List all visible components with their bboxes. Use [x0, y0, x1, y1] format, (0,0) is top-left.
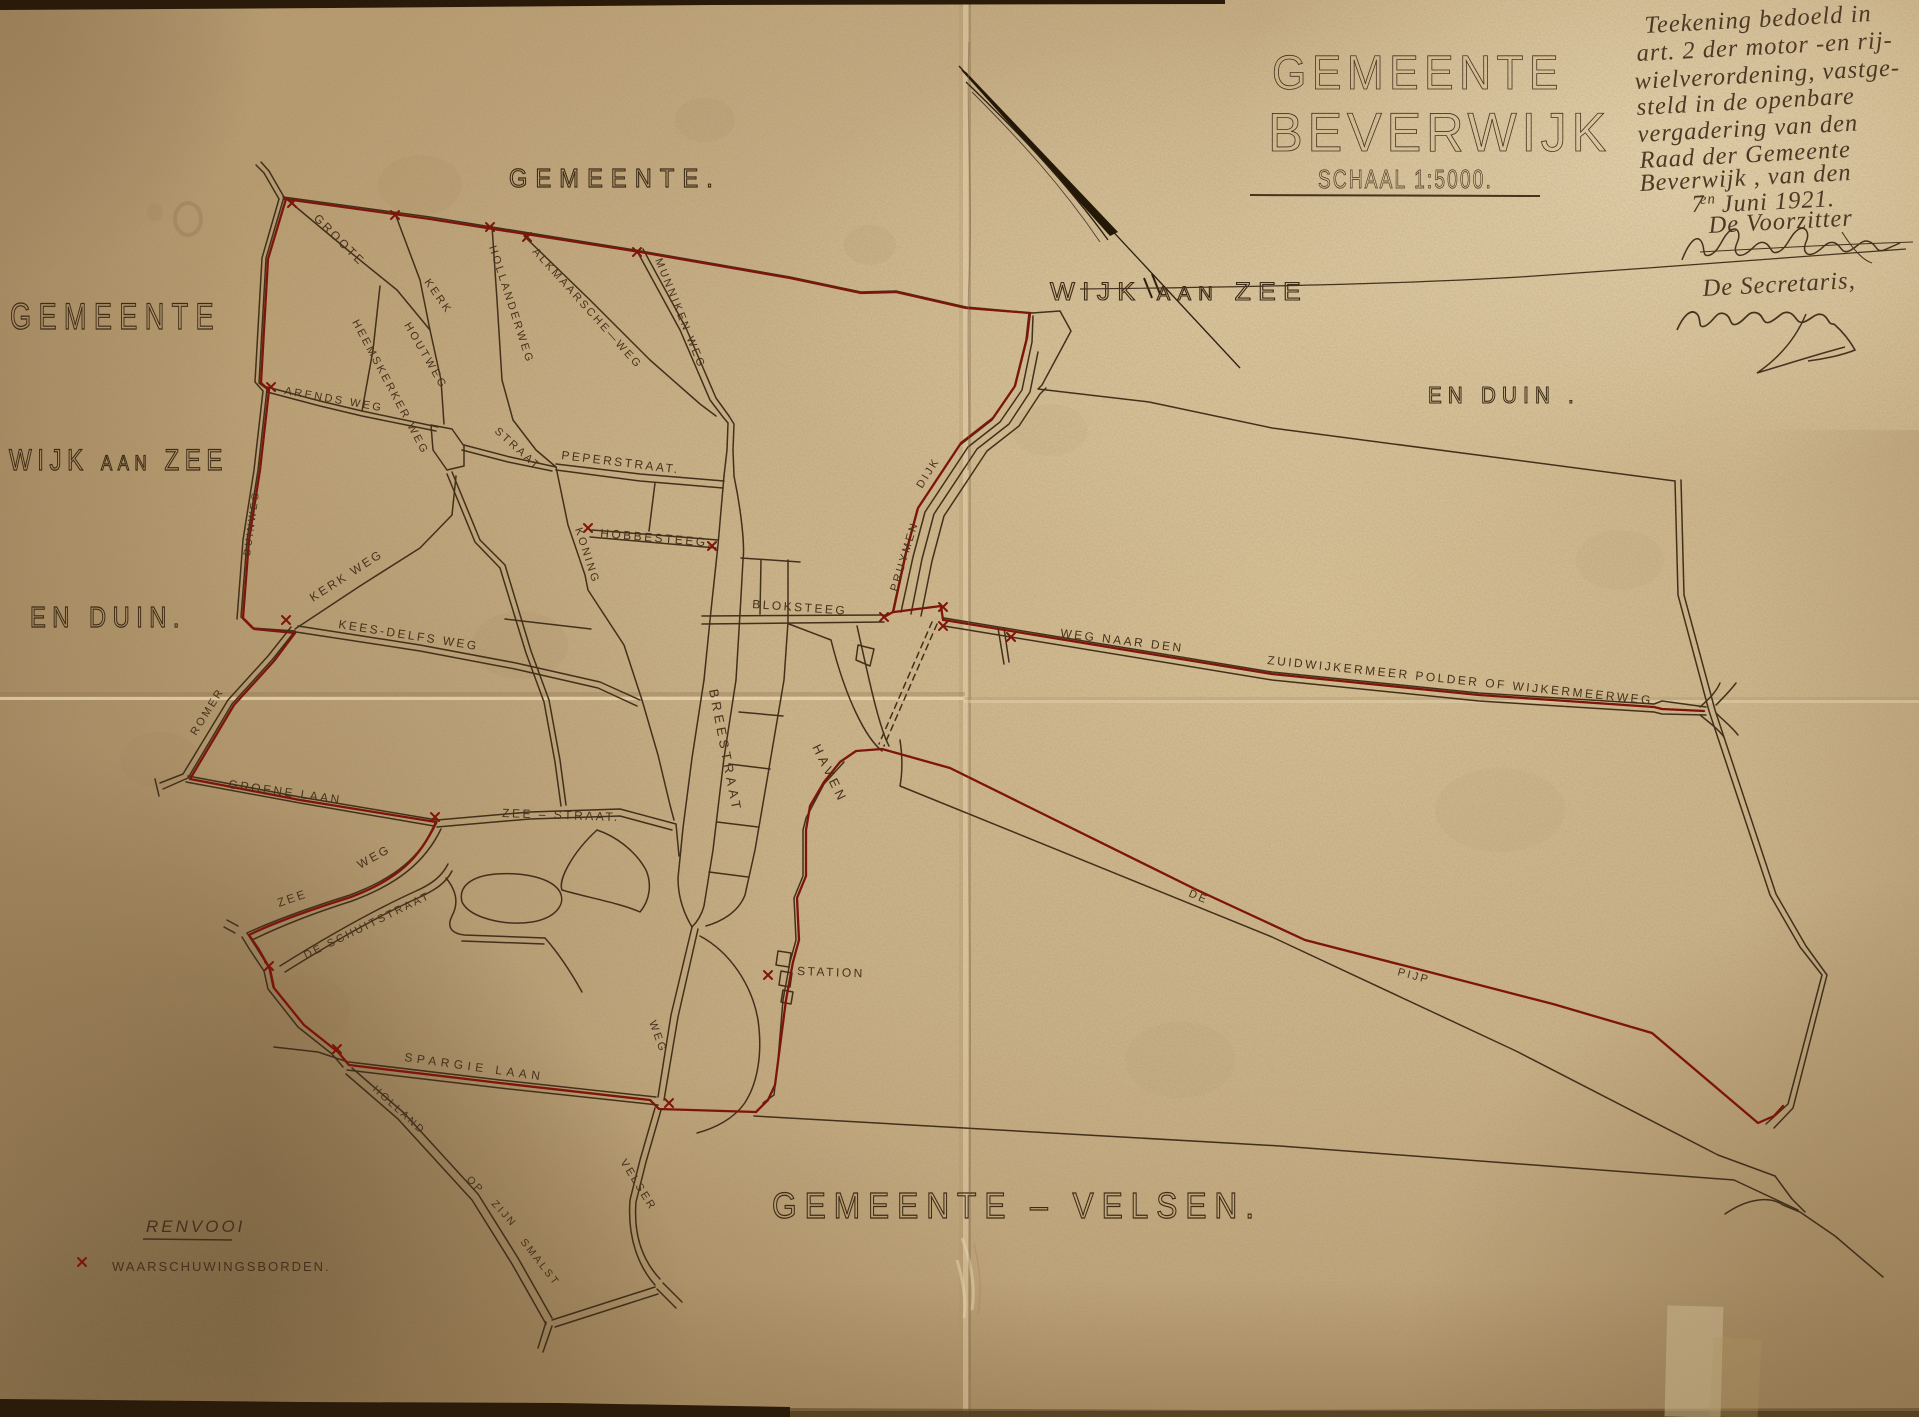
svg-text:EN DUIN .: EN DUIN . — [1428, 382, 1580, 408]
svg-text:WAARSCHUWINGSBORDEN.: WAARSCHUWINGSBORDEN. — [112, 1259, 331, 1274]
svg-text:EN DUIN.: EN DUIN. — [30, 602, 186, 634]
svg-text:GEMEENTE – VELSEN.: GEMEENTE – VELSEN. — [772, 1185, 1262, 1226]
svg-text:BEVERWIJK: BEVERWIJK — [1268, 101, 1611, 163]
svg-text:RENVOOI: RENVOOI — [146, 1217, 245, 1236]
svg-text:GEMEENTE: GEMEENTE — [10, 296, 221, 337]
svg-text:en: en — [1699, 191, 1716, 208]
svg-text:STATION: STATION — [797, 964, 865, 980]
svg-text:GEMEENTE.: GEMEENTE. — [509, 163, 721, 193]
svg-text:SCHAAL 1:5000.: SCHAAL 1:5000. — [1318, 164, 1493, 194]
svg-text:GEMEENTE: GEMEENTE — [1272, 47, 1564, 100]
